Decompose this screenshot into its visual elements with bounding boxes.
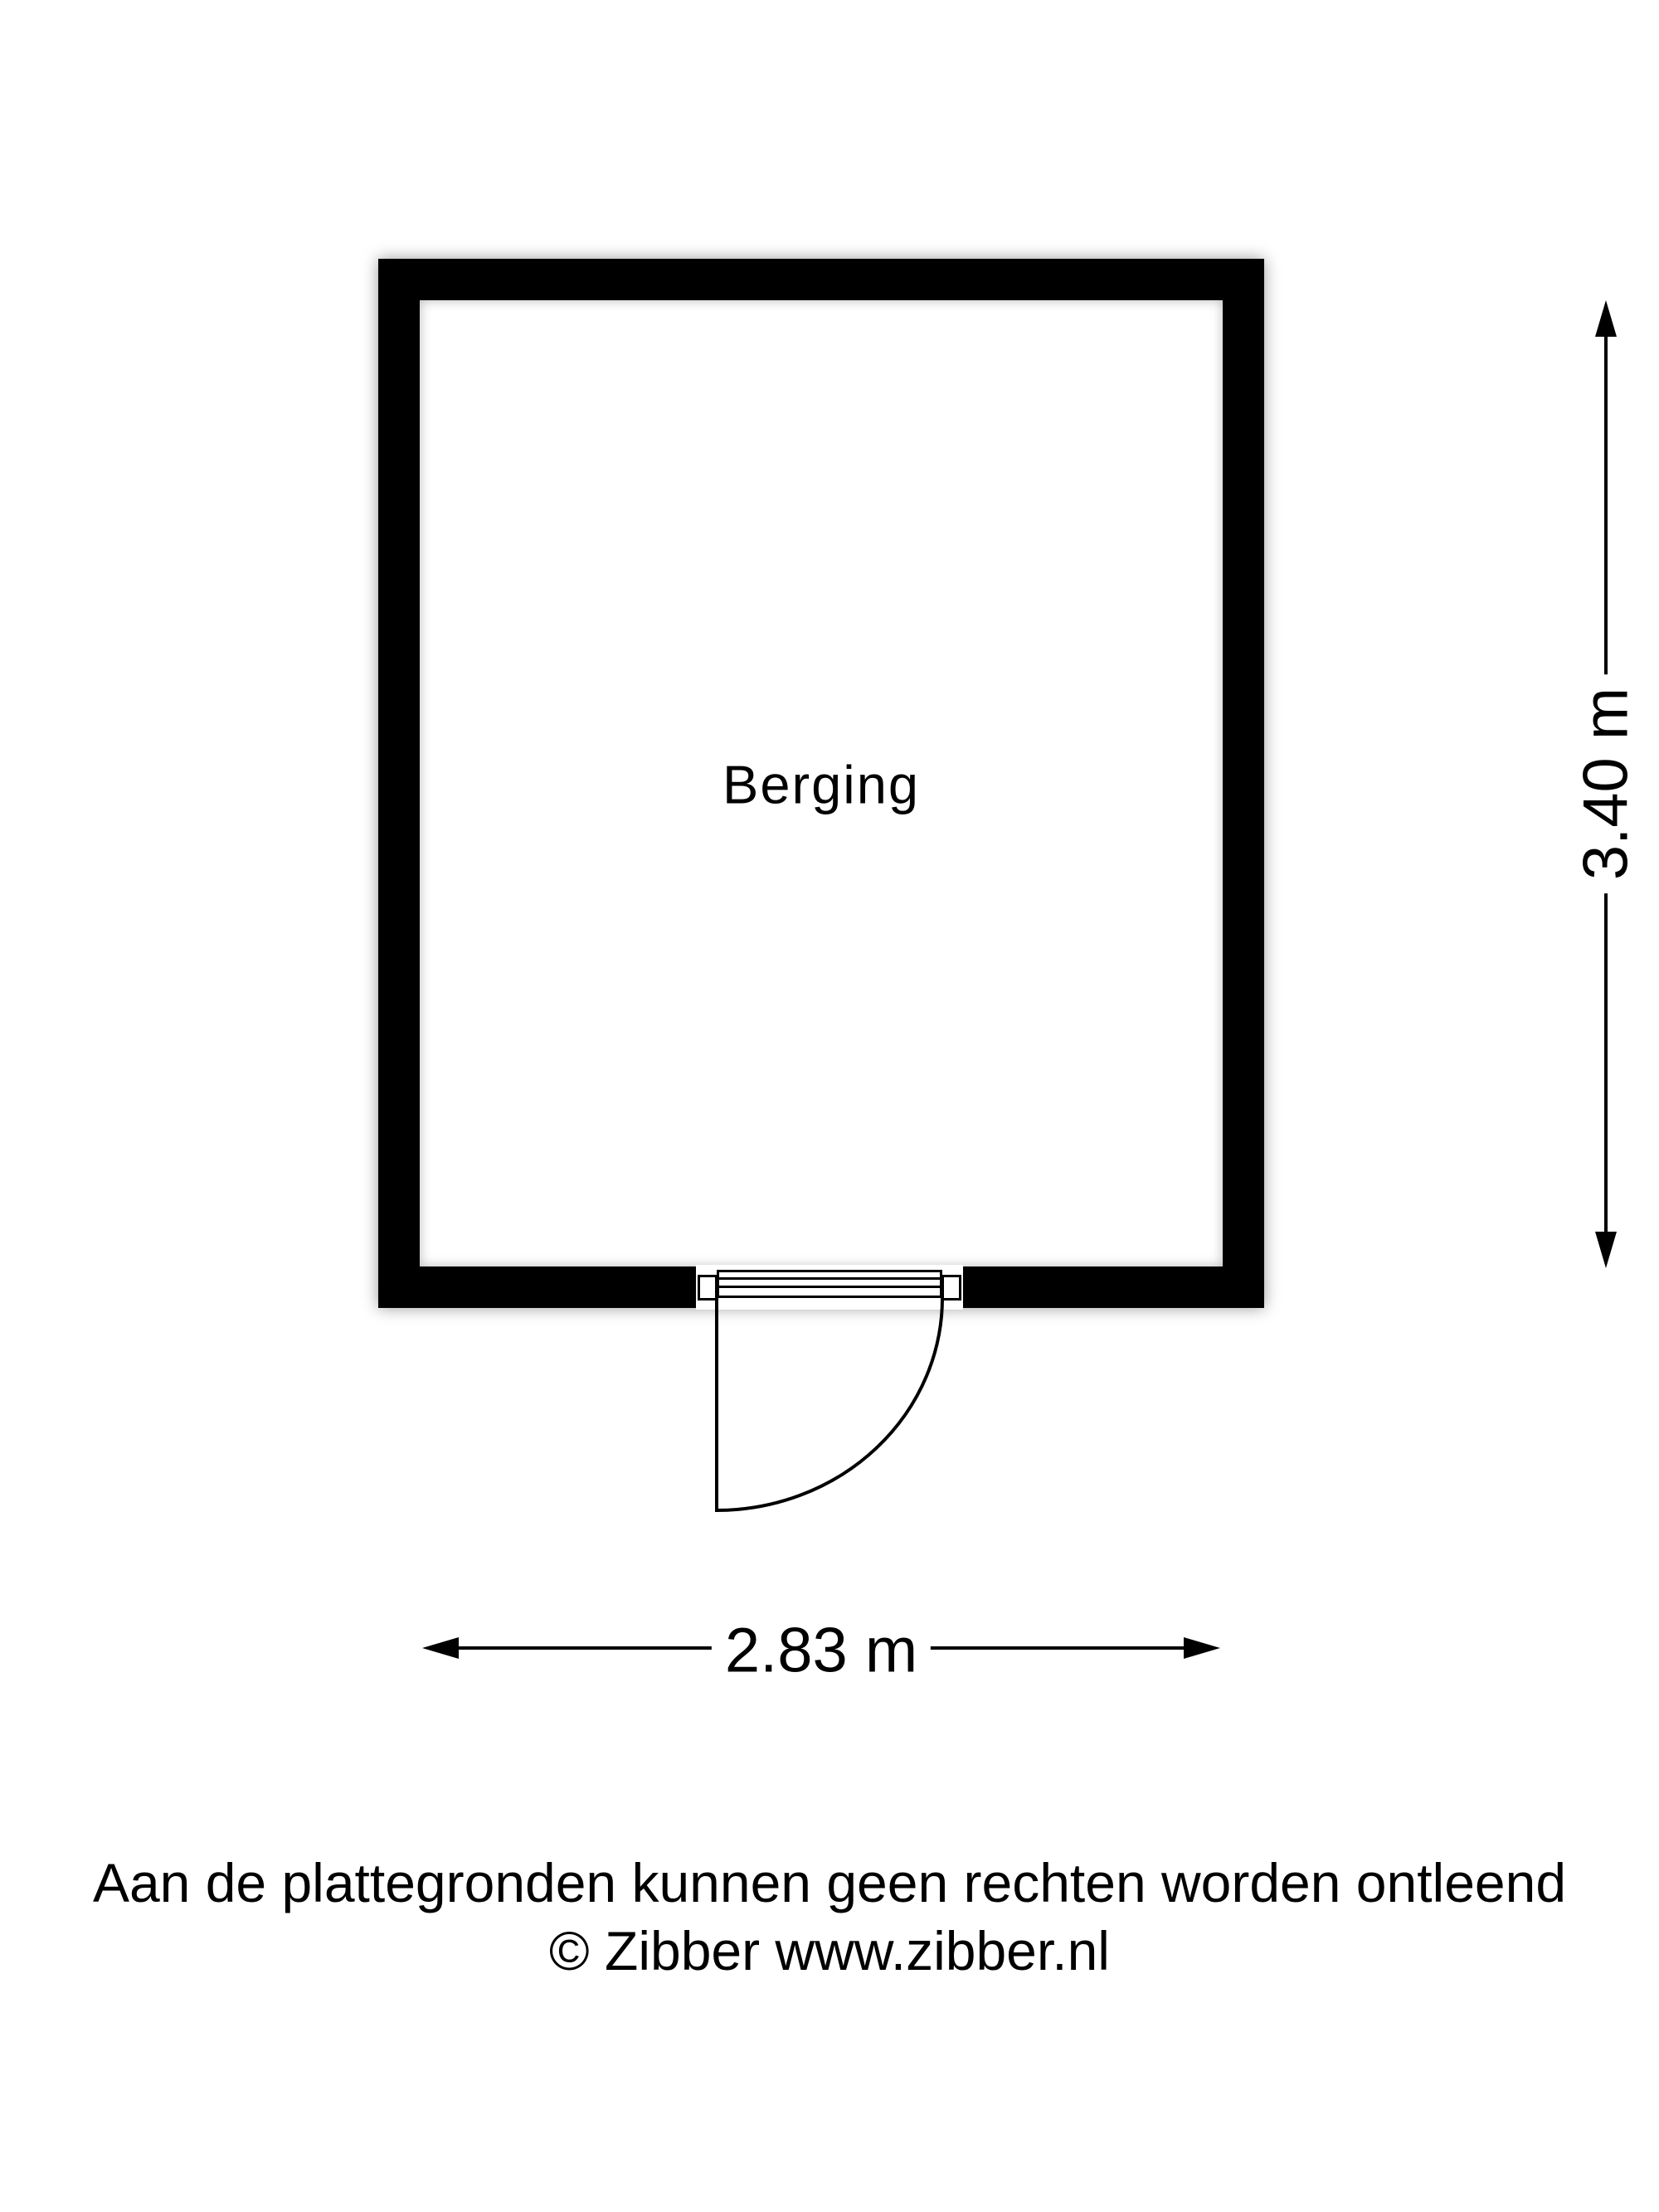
width-dimension-label: 2.83 m xyxy=(712,1615,931,1687)
footer: Aan de plattegronden kunnen geen rechten… xyxy=(0,1849,1659,1985)
door-jamb-right xyxy=(941,1275,961,1300)
height-dimension-label: 3.40 m xyxy=(1570,674,1642,893)
door-threshold xyxy=(717,1270,942,1298)
disclaimer-text: Aan de plattegronden kunnen geen rechten… xyxy=(0,1849,1659,1917)
floorplan-page: Berging 3.40 m 2.83 m Aan de plattegrond… xyxy=(0,0,1659,2212)
threshold-line xyxy=(719,1277,940,1280)
arrow-left-icon xyxy=(422,1637,459,1659)
room-label: Berging xyxy=(722,754,920,816)
door-jamb-left xyxy=(698,1275,718,1300)
threshold-line xyxy=(719,1286,940,1288)
arrow-down-icon xyxy=(1595,1232,1617,1268)
door-leaf xyxy=(715,1298,718,1512)
copyright-text: © Zibber www.zibber.nl xyxy=(0,1917,1659,1985)
door-swing-arc xyxy=(717,1298,942,1510)
arrow-right-icon xyxy=(1184,1637,1220,1659)
arrow-up-icon xyxy=(1595,300,1617,337)
